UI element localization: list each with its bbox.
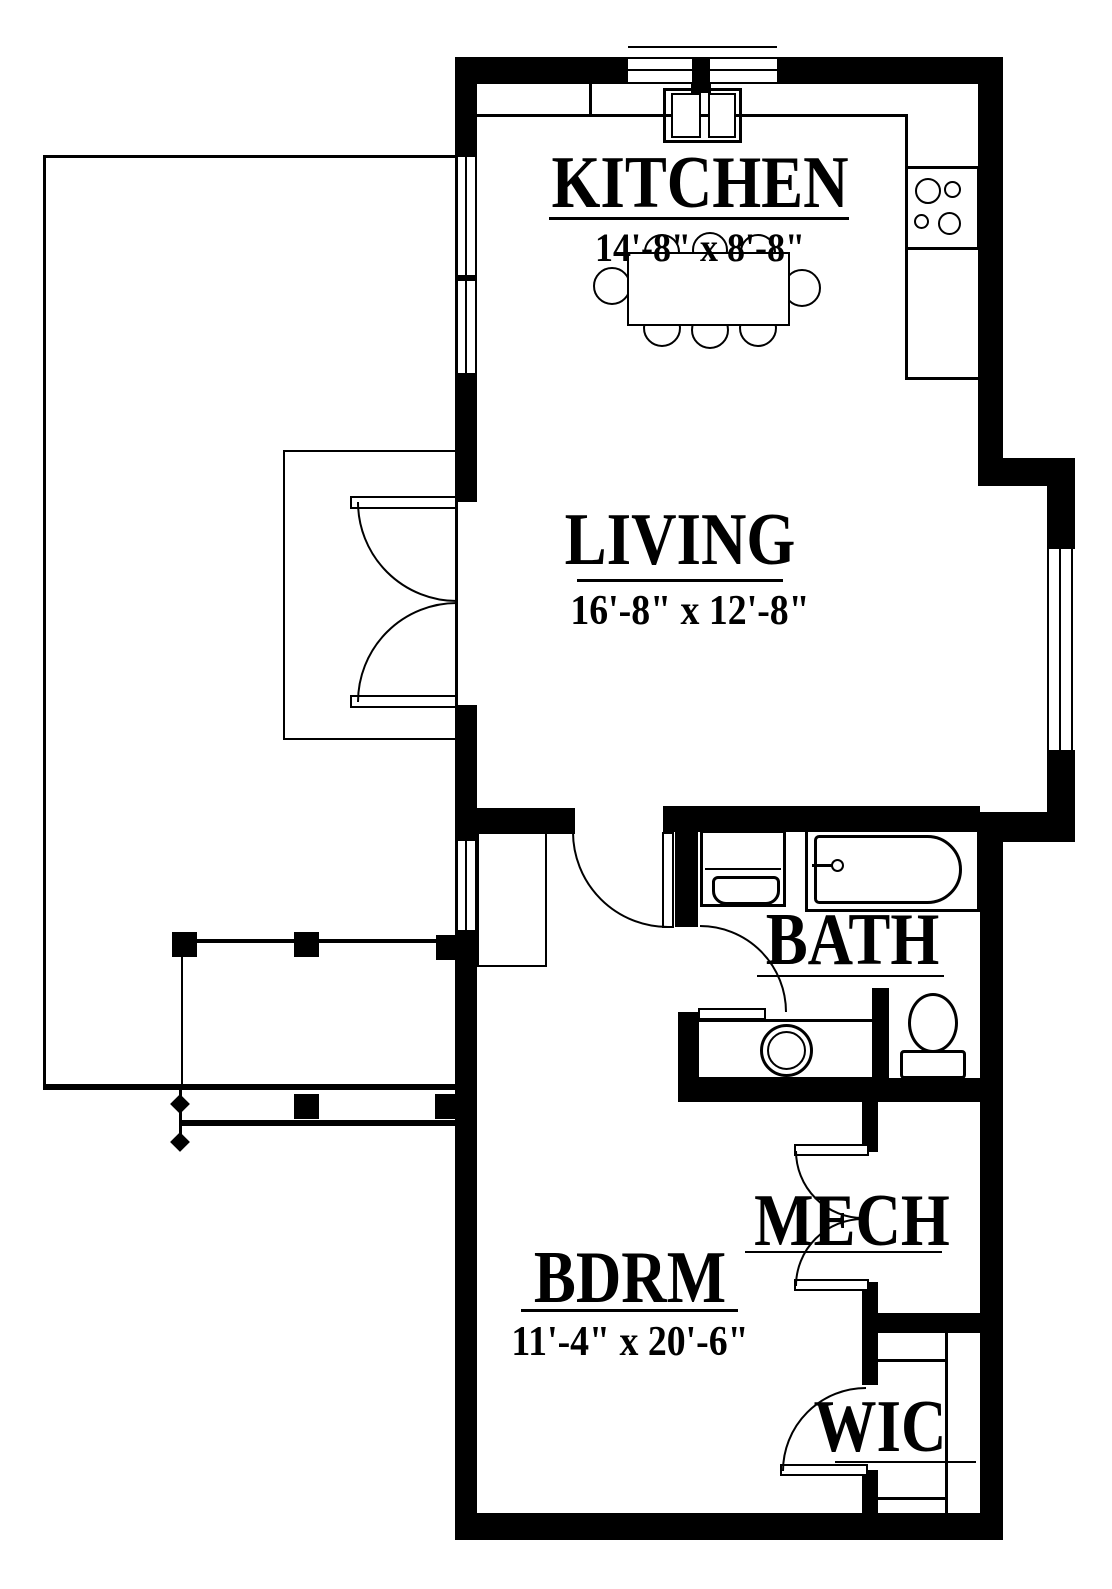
wall-right-upper (978, 57, 1003, 458)
bath-label-underline (757, 975, 944, 977)
stove (905, 166, 980, 250)
room-dims-kitchen: 14'-8" x 8'-8" (520, 228, 880, 268)
room-label-wic: WIC (710, 1390, 1050, 1464)
window-kitchen-west-upper (455, 157, 477, 275)
stove-burner (938, 212, 961, 235)
wall-left-a (455, 57, 477, 157)
bedroom-label-underline (521, 1309, 738, 1312)
stove-burner (944, 181, 961, 198)
wall-jog-top (978, 458, 1075, 486)
kitchen-sink-basin-right (708, 93, 736, 138)
deck-step-tick (170, 1094, 190, 1114)
mech-label-underline (745, 1251, 942, 1253)
bath-door-leaf (698, 1008, 766, 1020)
wall-left-b (455, 373, 477, 502)
wic-shelf-top (877, 1359, 947, 1362)
wall-jog-right-b (1047, 750, 1075, 816)
wall-wic-west (862, 1470, 878, 1513)
kitchen-counter-divider (589, 84, 592, 117)
bathtub-faucet-head (831, 859, 844, 872)
hall-closet (477, 832, 547, 967)
deck-edge-vertical (181, 943, 183, 1090)
deck-post (294, 1094, 319, 1119)
room-label-living: LIVING (510, 503, 850, 577)
living-label-underline (577, 579, 783, 582)
deck-rail-upper (183, 939, 458, 943)
deck-post (172, 932, 197, 957)
wall-mech-wic-divider (862, 1313, 1003, 1333)
deck-rail-lower (180, 1120, 458, 1126)
deck-step-tick (170, 1132, 190, 1152)
window-bedroom-west (455, 841, 477, 930)
kitchen-counter-right-cap (905, 377, 980, 380)
wall-mech-west-lower (862, 1282, 878, 1385)
floor-plan: KITCHEN 14'-8" x 8'-8" LIVING 16'-8" x 1… (0, 0, 1112, 1589)
toilet-tank (900, 1050, 966, 1079)
stove-burner (915, 178, 941, 204)
room-label-mech: MECH (682, 1184, 1022, 1258)
room-dims-bedroom: 11'-4" x 20'-6" (450, 1321, 810, 1363)
window-north-mullion (692, 57, 710, 84)
wic-shelf-bottom (877, 1497, 947, 1500)
window-kitchen-west-lower (455, 281, 477, 373)
wall-bath-south (678, 1078, 1003, 1102)
room-label-kitchen: KITCHEN (530, 146, 870, 220)
wall-bath-north (663, 806, 980, 832)
wic-label-underline (835, 1461, 976, 1463)
toilet-bowl (908, 993, 958, 1053)
kitchen-faucet (691, 84, 711, 93)
room-label-bath: BATH (689, 903, 1016, 977)
deck-post (294, 932, 319, 957)
stove-burner (914, 214, 929, 229)
wall-vanity-toilet-partition (872, 988, 889, 1080)
kitchen-label-underline (549, 217, 849, 220)
room-dims-living: 16'-8" x 12'-8" (501, 590, 879, 632)
dining-chair (593, 267, 631, 305)
wall-living-hall (455, 808, 575, 834)
wall-jog-right-a (1047, 486, 1075, 549)
wall-top-right (777, 57, 1003, 84)
kitchen-sink-basin-left (671, 93, 701, 138)
window-living-east (1047, 549, 1073, 750)
wall-jog-bottom (978, 812, 1075, 842)
vanity-sink-inner (767, 1031, 806, 1070)
wall-top-left (455, 57, 628, 84)
wall-left-d (455, 930, 477, 1513)
laundry-sink-edge (705, 868, 781, 870)
wall-bottom (455, 1513, 1003, 1540)
